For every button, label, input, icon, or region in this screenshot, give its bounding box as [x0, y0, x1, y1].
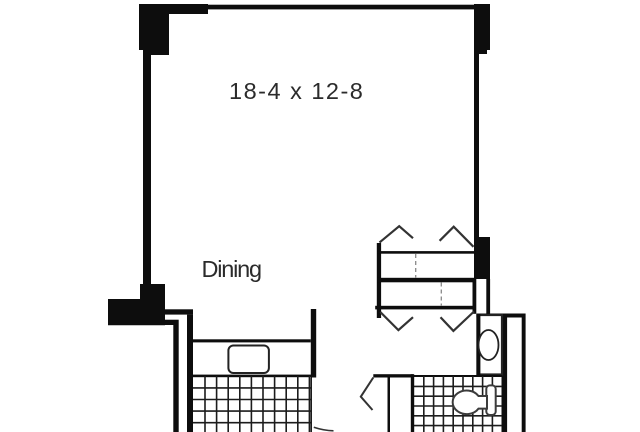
svg-text:18-4 x 12-8: 18-4 x 12-8 — [229, 78, 364, 104]
svg-text:Dining: Dining — [202, 256, 262, 282]
